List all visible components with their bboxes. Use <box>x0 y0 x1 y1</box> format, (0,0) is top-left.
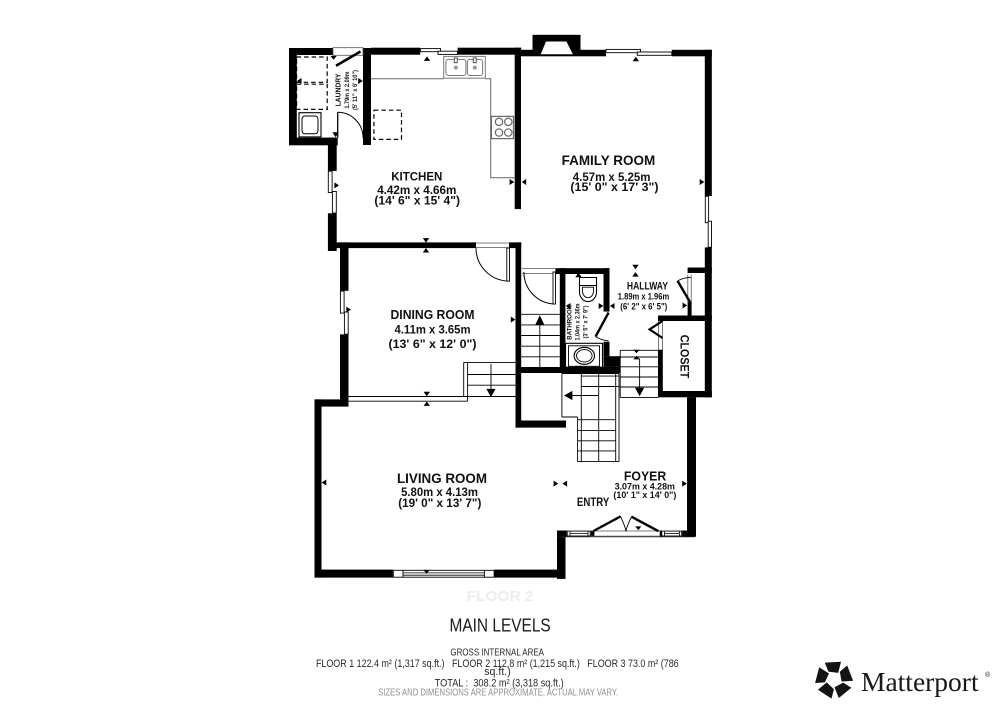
svg-text:Matterport: Matterport <box>861 666 979 697</box>
svg-text:GROSS INTERNAL AREA: GROSS INTERNAL AREA <box>450 648 544 659</box>
svg-text:DINING ROOM: DINING ROOM <box>391 307 475 322</box>
svg-text:sq.ft.): sq.ft.) <box>484 666 511 678</box>
svg-text:CLOSET: CLOSET <box>677 335 689 379</box>
svg-text:LAUNDRY: LAUNDRY <box>336 73 343 106</box>
svg-text:1.79m x 2.09m: 1.79m x 2.09m <box>344 71 351 108</box>
svg-text:LIVING ROOM: LIVING ROOM <box>397 471 487 486</box>
svg-text:(6' 2" x 6' 5"): (6' 2" x 6' 5") <box>620 301 667 311</box>
svg-text:®: ® <box>985 671 991 679</box>
svg-text:(14' 6" x 15' 4"): (14' 6" x 15' 4") <box>374 194 460 208</box>
svg-text:BATHROOM: BATHROOM <box>566 304 573 340</box>
svg-text:(15' 0" x 17' 3"): (15' 0" x 17' 3") <box>570 180 658 194</box>
svg-text:MAIN LEVELS: MAIN LEVELS <box>450 616 551 636</box>
svg-text:(19' 0" x 13' 7"): (19' 0" x 13' 7") <box>398 496 481 510</box>
svg-text:KITCHEN: KITCHEN <box>391 171 442 183</box>
svg-text:1.89m x 1.96m: 1.89m x 1.96m <box>618 291 669 301</box>
svg-text:(5' 11" x 6' 10"): (5' 11" x 6' 10") <box>352 70 359 110</box>
svg-text:(3' 5" x 7' 9"): (3' 5" x 7' 9") <box>583 306 590 339</box>
svg-text:1.04m x 2.36m: 1.04m x 2.36m <box>575 303 582 340</box>
svg-text:ENTRY: ENTRY <box>577 497 610 509</box>
svg-text:FAMILY ROOM: FAMILY ROOM <box>562 152 656 168</box>
svg-text:(10' 1" x 14' 0"): (10' 1" x 14' 0") <box>613 490 676 500</box>
svg-text:SIZES AND DIMENSIONS ARE APPRO: SIZES AND DIMENSIONS ARE APPROXIMATE, AC… <box>378 688 618 699</box>
svg-text:(13' 6" x 12' 0"): (13' 6" x 12' 0") <box>389 337 477 351</box>
svg-text:4.11m x 3.65m: 4.11m x 3.65m <box>395 323 471 337</box>
svg-text:FLOOR 2: FLOOR 2 <box>467 589 534 605</box>
